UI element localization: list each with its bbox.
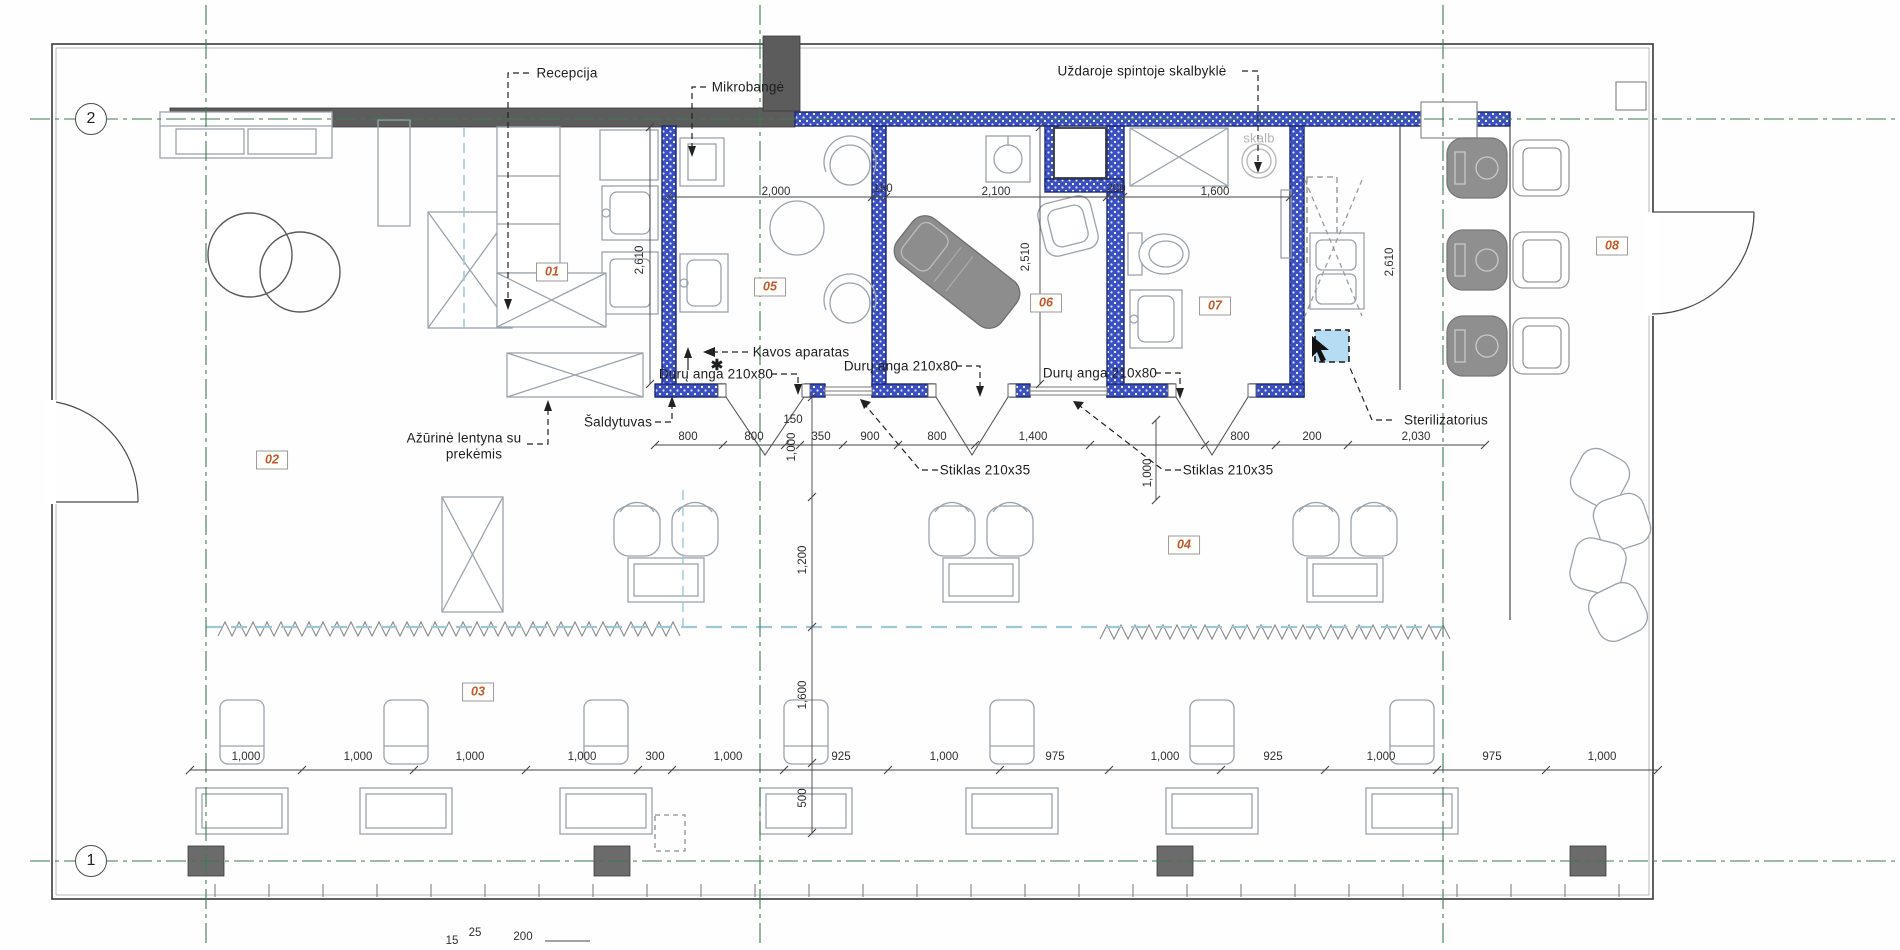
bottom-stations <box>196 700 1458 834</box>
display-shelf-horizontal <box>507 353 643 397</box>
chair-05b <box>824 274 876 323</box>
glass-partitions <box>825 387 1107 395</box>
washer-cupboard <box>1130 128 1228 186</box>
floor-plan-drawing <box>0 0 1900 950</box>
dashed-box <box>655 815 685 851</box>
station-bottom <box>196 700 288 834</box>
panel-box <box>1421 102 1477 138</box>
floor-plan-canvas: RecepcijaMikrobangėUždaroje spintoje ska… <box>0 0 1900 950</box>
microwave <box>680 138 724 186</box>
station-bottom <box>360 700 452 834</box>
station-bottom <box>1166 700 1258 834</box>
niche-box <box>1054 128 1106 178</box>
chair-05a <box>824 136 876 185</box>
barber-stations <box>1447 138 1569 376</box>
washing-machine <box>1242 144 1276 178</box>
station-bottom <box>1366 700 1458 834</box>
kitchen-counter <box>497 127 658 327</box>
teal-dashed-lines <box>206 127 1443 627</box>
station-bottom <box>966 700 1058 834</box>
station-mid-2 <box>929 503 1033 602</box>
station-mid-1 <box>614 503 718 602</box>
styling-chairs <box>1513 140 1569 374</box>
display-shelf-vertical <box>442 497 503 612</box>
round-table <box>770 201 824 255</box>
furniture <box>160 112 1655 851</box>
room05-furniture <box>680 136 876 323</box>
station-bottom <box>560 700 652 834</box>
station-mid-3 <box>1293 503 1397 602</box>
floor-zigzag <box>218 622 1450 639</box>
pouf-tables <box>208 213 340 312</box>
massage-table <box>888 209 1026 334</box>
chair-06 <box>1035 193 1100 258</box>
building-shell <box>52 44 1653 899</box>
right-wall-chairs <box>1565 443 1655 647</box>
station-bottom <box>760 700 852 834</box>
corridor-equipment <box>1305 177 1364 316</box>
toilet <box>1128 233 1189 275</box>
corner-box <box>1616 82 1646 110</box>
crossed-cabinet-kitchen <box>497 273 606 327</box>
room07-furniture <box>1128 128 1291 348</box>
tall-cabinet <box>378 120 410 226</box>
door-swings <box>726 397 1248 455</box>
middle-stations <box>614 503 1397 602</box>
